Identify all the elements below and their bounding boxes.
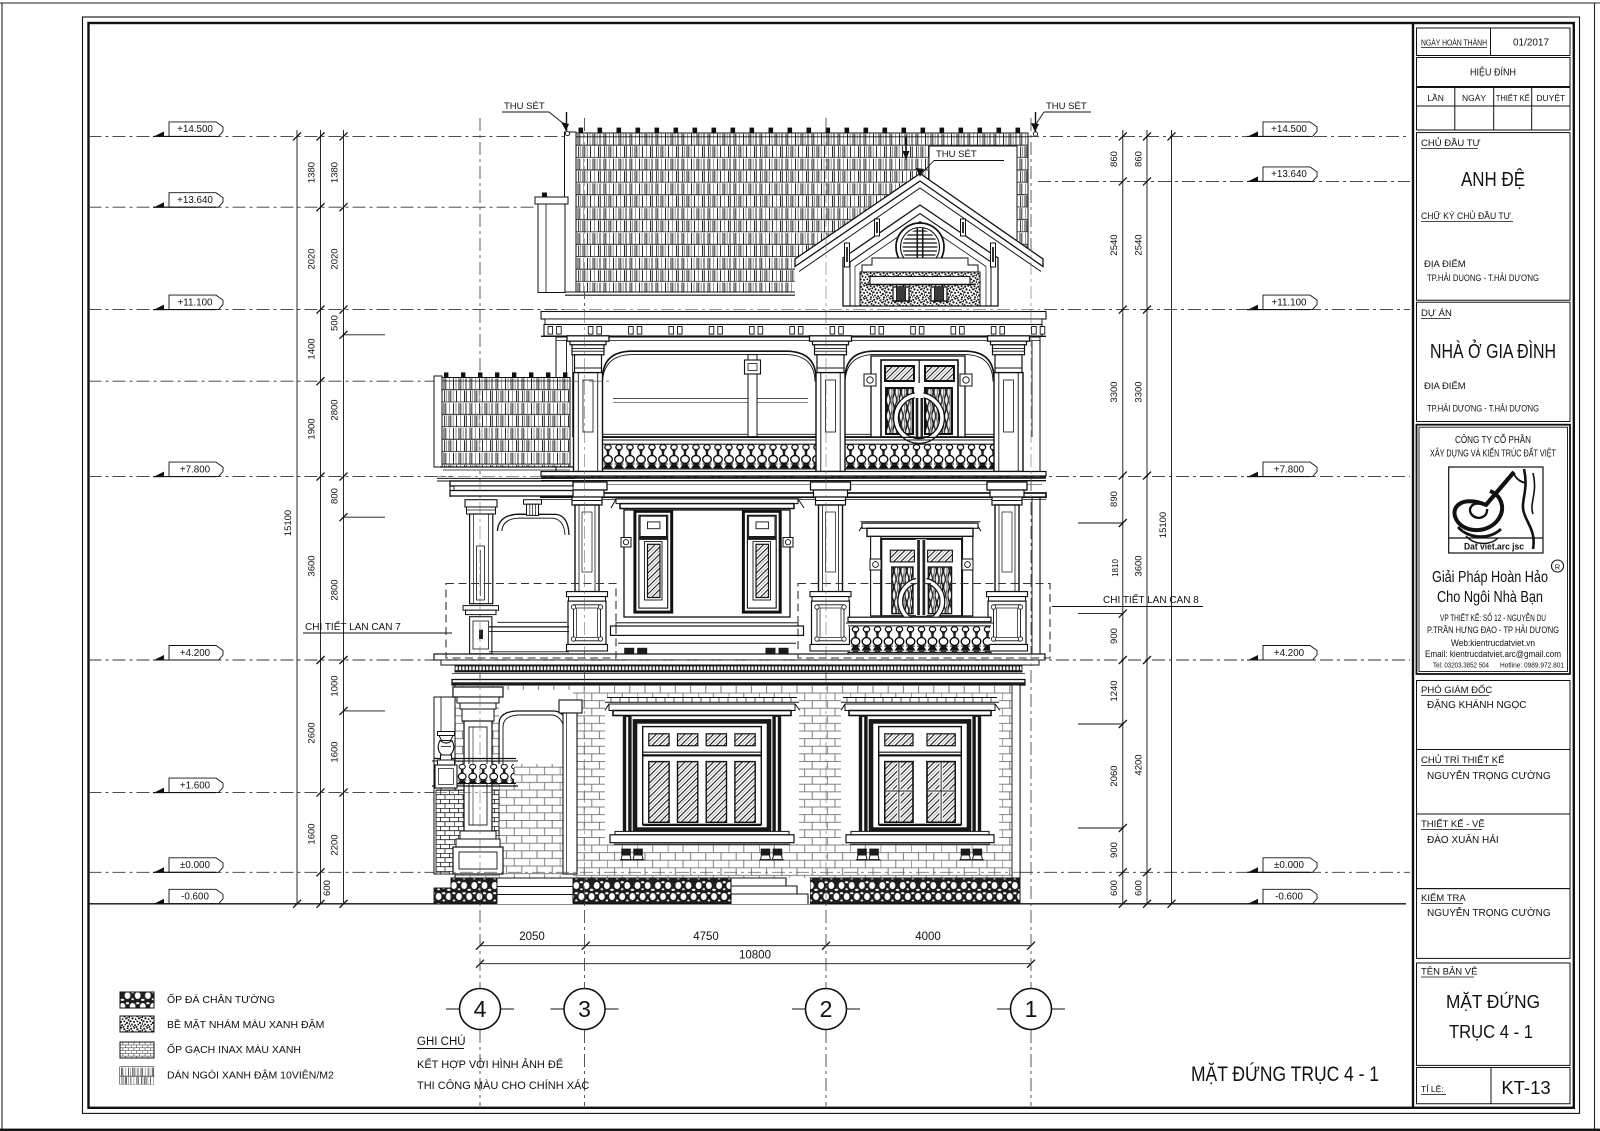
svg-text:+13.640: +13.640 (1271, 169, 1307, 180)
svg-text:TRỤC 4 - 1: TRỤC 4 - 1 (1449, 1021, 1533, 1042)
svg-text:3300: 3300 (1134, 381, 1145, 402)
svg-text:600: 600 (1109, 880, 1120, 896)
svg-text:+11.100: +11.100 (178, 297, 214, 308)
svg-text:+11.100: +11.100 (1272, 297, 1308, 308)
svg-text:10800: 10800 (739, 950, 771, 962)
svg-text:ĐÀO XUÂN HẢI: ĐÀO XUÂN HẢI (1427, 833, 1499, 846)
svg-text:500: 500 (330, 315, 341, 331)
svg-text:THIẾT KẾ - VẼ: THIẾT KẾ - VẼ (1421, 819, 1485, 830)
svg-text:1810: 1810 (1111, 559, 1120, 577)
svg-text:Web:kientrucdatviet.vn: Web:kientrucdatviet.vn (1451, 638, 1535, 648)
svg-text:3300: 3300 (1109, 381, 1120, 402)
svg-text:2800: 2800 (330, 579, 341, 600)
svg-text:890: 890 (1109, 491, 1120, 507)
svg-text:Cho Ngôi Nhà Bạn: Cho Ngôi Nhà Bạn (1437, 589, 1543, 606)
svg-text:ĐẶNG KHÁNH NGỌC: ĐẶNG KHÁNH NGỌC (1427, 698, 1526, 711)
svg-text:NGUYỄN TRỌNG CƯỜNG: NGUYỄN TRỌNG CƯỜNG (1427, 769, 1551, 782)
svg-text:CÔNG TY CỔ PHẦN: CÔNG TY CỔ PHẦN (1455, 433, 1531, 446)
svg-text:4200: 4200 (1134, 754, 1145, 775)
svg-text:GHI CHÚ: GHI CHÚ (417, 1035, 466, 1048)
svg-text:ĐỊA ĐIỂM: ĐỊA ĐIỂM (1424, 380, 1466, 392)
svg-text:THU SÉT: THU SÉT (504, 101, 545, 112)
svg-text:+7.800: +7.800 (1274, 464, 1305, 475)
svg-text:4750: 4750 (693, 931, 719, 943)
svg-text:ỐP GẠCH INAX MÀU XANH: ỐP GẠCH INAX MÀU XANH (167, 1042, 301, 1056)
svg-text:+4.200: +4.200 (180, 648, 211, 659)
svg-text:1380: 1380 (330, 162, 341, 183)
svg-text:DUYỆT: DUYỆT (1536, 93, 1565, 103)
svg-text:+7.800: +7.800 (180, 464, 211, 475)
svg-text:Tel: 03203.3852 504: Tel: 03203.3852 504 (1433, 661, 1489, 670)
svg-text:LẦN: LẦN (1427, 93, 1444, 103)
svg-text:+1.600: +1.600 (180, 780, 211, 791)
svg-text:THU SÉT: THU SÉT (936, 149, 977, 160)
svg-text:2540: 2540 (1134, 234, 1145, 255)
svg-text:860: 860 (1134, 151, 1145, 167)
svg-text:XÂY DỰNG VÀ KIẾN TRÚC ĐẤT VIỆT: XÂY DỰNG VÀ KIẾN TRÚC ĐẤT VIỆT (1430, 447, 1556, 460)
svg-text:3: 3 (578, 996, 591, 1022)
svg-text:CHỦ TRÌ THIẾT KẾ: CHỦ TRÌ THIẾT KẾ (1421, 754, 1504, 766)
svg-text:2: 2 (820, 996, 833, 1022)
svg-text:NHÀ Ở GIA ĐÌNH: NHÀ Ở GIA ĐÌNH (1430, 339, 1556, 363)
svg-text:1600: 1600 (330, 741, 341, 762)
svg-text:2060: 2060 (1109, 765, 1120, 786)
svg-text:THI CÔNG MÀU CHO CHÍNH XÁC: THI CÔNG MÀU CHO CHÍNH XÁC (417, 1079, 589, 1092)
svg-text:Dat viet.arc jsc: Dat viet.arc jsc (1464, 542, 1524, 553)
svg-text:-0.600: -0.600 (181, 892, 209, 903)
svg-text:1000: 1000 (330, 675, 341, 696)
svg-text:TP.HẢI DUONG - T.HẢI DƯƠNG: TP.HẢI DUONG - T.HẢI DƯƠNG (1427, 272, 1539, 284)
svg-text:4: 4 (474, 996, 487, 1022)
svg-text:NGÀY: NGÀY (1462, 93, 1486, 103)
svg-text:KẾT HỢP VỚI HÌNH ẢNH ĐỂ: KẾT HỢP VỚI HÌNH ẢNH ĐỂ (417, 1058, 563, 1071)
svg-text:15100: 15100 (283, 510, 294, 536)
svg-text:600: 600 (1134, 880, 1145, 896)
svg-text:3600: 3600 (1134, 555, 1145, 576)
svg-text:01/2017: 01/2017 (1513, 37, 1549, 49)
svg-text:2540: 2540 (1109, 234, 1120, 255)
svg-text:TP.HẢI DƯƠNG - T.HẢI DƯƠNG: TP.HẢI DƯƠNG - T.HẢI DƯƠNG (1427, 403, 1539, 415)
svg-text:Email: kientrucdatviet.arc@gma: Email: kientrucdatviet.arc@gmail.com (1425, 649, 1561, 659)
svg-text:860: 860 (1109, 151, 1120, 167)
svg-text:PHÓ GIÁM ĐỐC: PHÓ GIÁM ĐỐC (1421, 684, 1492, 696)
svg-text:BỀ MẶT NHÁM MÀU XANH ĐẬM: BỀ MẶT NHÁM MÀU XANH ĐẬM (167, 1018, 324, 1031)
svg-text:+14.500: +14.500 (177, 124, 213, 135)
svg-text:DỰ ÁN: DỰ ÁN (1421, 308, 1452, 319)
svg-text:Hotline: 0989.972.801: Hotline: 0989.972.801 (1500, 661, 1564, 670)
svg-text:800: 800 (330, 488, 341, 504)
svg-text:ỐP ĐÁ CHÂN TƯỜNG: ỐP ĐÁ CHÂN TƯỜNG (167, 992, 275, 1006)
svg-text:±0.000: ±0.000 (1274, 860, 1304, 871)
svg-text:2020: 2020 (307, 248, 318, 269)
svg-text:+4.200: +4.200 (1274, 648, 1305, 659)
svg-text:1900: 1900 (307, 418, 318, 439)
svg-text:±0.000: ±0.000 (180, 860, 210, 871)
svg-text:2600: 2600 (307, 722, 318, 743)
svg-text:2200: 2200 (330, 834, 341, 855)
svg-text:Giải Pháp Hoàn Hảo: Giải Pháp Hoàn Hảo (1432, 569, 1548, 586)
svg-text:+13.640: +13.640 (177, 195, 213, 206)
svg-text:15100: 15100 (1158, 512, 1169, 538)
svg-text:CHI TIẾT LAN CAN 7: CHI TIẾT LAN CAN 7 (305, 620, 401, 633)
svg-text:2050: 2050 (519, 931, 545, 943)
svg-text:R: R (1555, 563, 1561, 572)
svg-text:2020: 2020 (330, 248, 341, 269)
svg-text:600: 600 (322, 880, 333, 896)
svg-text:1380: 1380 (307, 162, 318, 183)
svg-text:P.TRẦN HƯNG ĐẠO - TP HẢI DƯƠNG: P.TRẦN HƯNG ĐẠO - TP HẢI DƯƠNG (1427, 624, 1559, 635)
svg-text:CHỦ ĐẦU TƯ: CHỦ ĐẦU TƯ (1421, 137, 1481, 149)
svg-text:CHỮ KÝ CHỦ ĐẦU TƯ: CHỮ KÝ CHỦ ĐẦU TƯ (1421, 210, 1511, 222)
svg-text:TÊN BẢN VẼ: TÊN BẢN VẼ (1421, 966, 1478, 978)
svg-text:ĐỊA ĐIỂM: ĐỊA ĐIỂM (1424, 258, 1466, 270)
svg-text:4000: 4000 (915, 931, 941, 943)
svg-text:NGUYỄN TRỌNG CƯỜNG: NGUYỄN TRỌNG CƯỜNG (1427, 906, 1551, 919)
svg-text:1400: 1400 (307, 338, 318, 359)
svg-text:KT-13: KT-13 (1501, 1077, 1550, 1098)
svg-text:1: 1 (1025, 996, 1038, 1022)
svg-text:THU SÉT: THU SÉT (1046, 101, 1087, 112)
svg-text:1240: 1240 (1109, 680, 1120, 701)
svg-text:-0.600: -0.600 (1275, 892, 1303, 903)
svg-text:+14.500: +14.500 (1271, 124, 1307, 135)
svg-text:3600: 3600 (307, 555, 318, 576)
svg-text:900: 900 (1109, 842, 1120, 858)
svg-text:1600: 1600 (307, 823, 318, 844)
svg-text:TỈ LỆ:: TỈ LỆ: (1421, 1083, 1444, 1094)
svg-text:NGÀY HOÀN THÀNH: NGÀY HOÀN THÀNH (1421, 38, 1487, 48)
svg-text:MẶT ĐỨNG: MẶT ĐỨNG (1446, 991, 1540, 1012)
svg-text:900: 900 (1109, 628, 1120, 644)
svg-text:KIỂM TRA: KIỂM TRA (1421, 892, 1466, 904)
svg-text:ANH ĐỆ: ANH ĐỆ (1461, 168, 1525, 191)
svg-text:2800: 2800 (330, 399, 341, 420)
svg-text:DÁN NGÓI XANH ĐẬM 10VIÊN/M2: DÁN NGÓI XANH ĐẬM 10VIÊN/M2 (167, 1069, 334, 1082)
svg-text:CHI TIẾT LAN CAN 8: CHI TIẾT LAN CAN 8 (1103, 593, 1199, 606)
svg-text:MẶT ĐỨNG TRỤC 4 - 1: MẶT ĐỨNG TRỤC 4 - 1 (1191, 1063, 1379, 1086)
svg-text:VP THIẾT KẾ: SỐ 12 - NGUYỄN DU: VP THIẾT KẾ: SỐ 12 - NGUYỄN DU (1440, 612, 1546, 623)
svg-text:HIỆU ĐÍNH: HIỆU ĐÍNH (1470, 66, 1516, 79)
svg-text:THIẾT KẾ: THIẾT KẾ (1496, 93, 1530, 103)
